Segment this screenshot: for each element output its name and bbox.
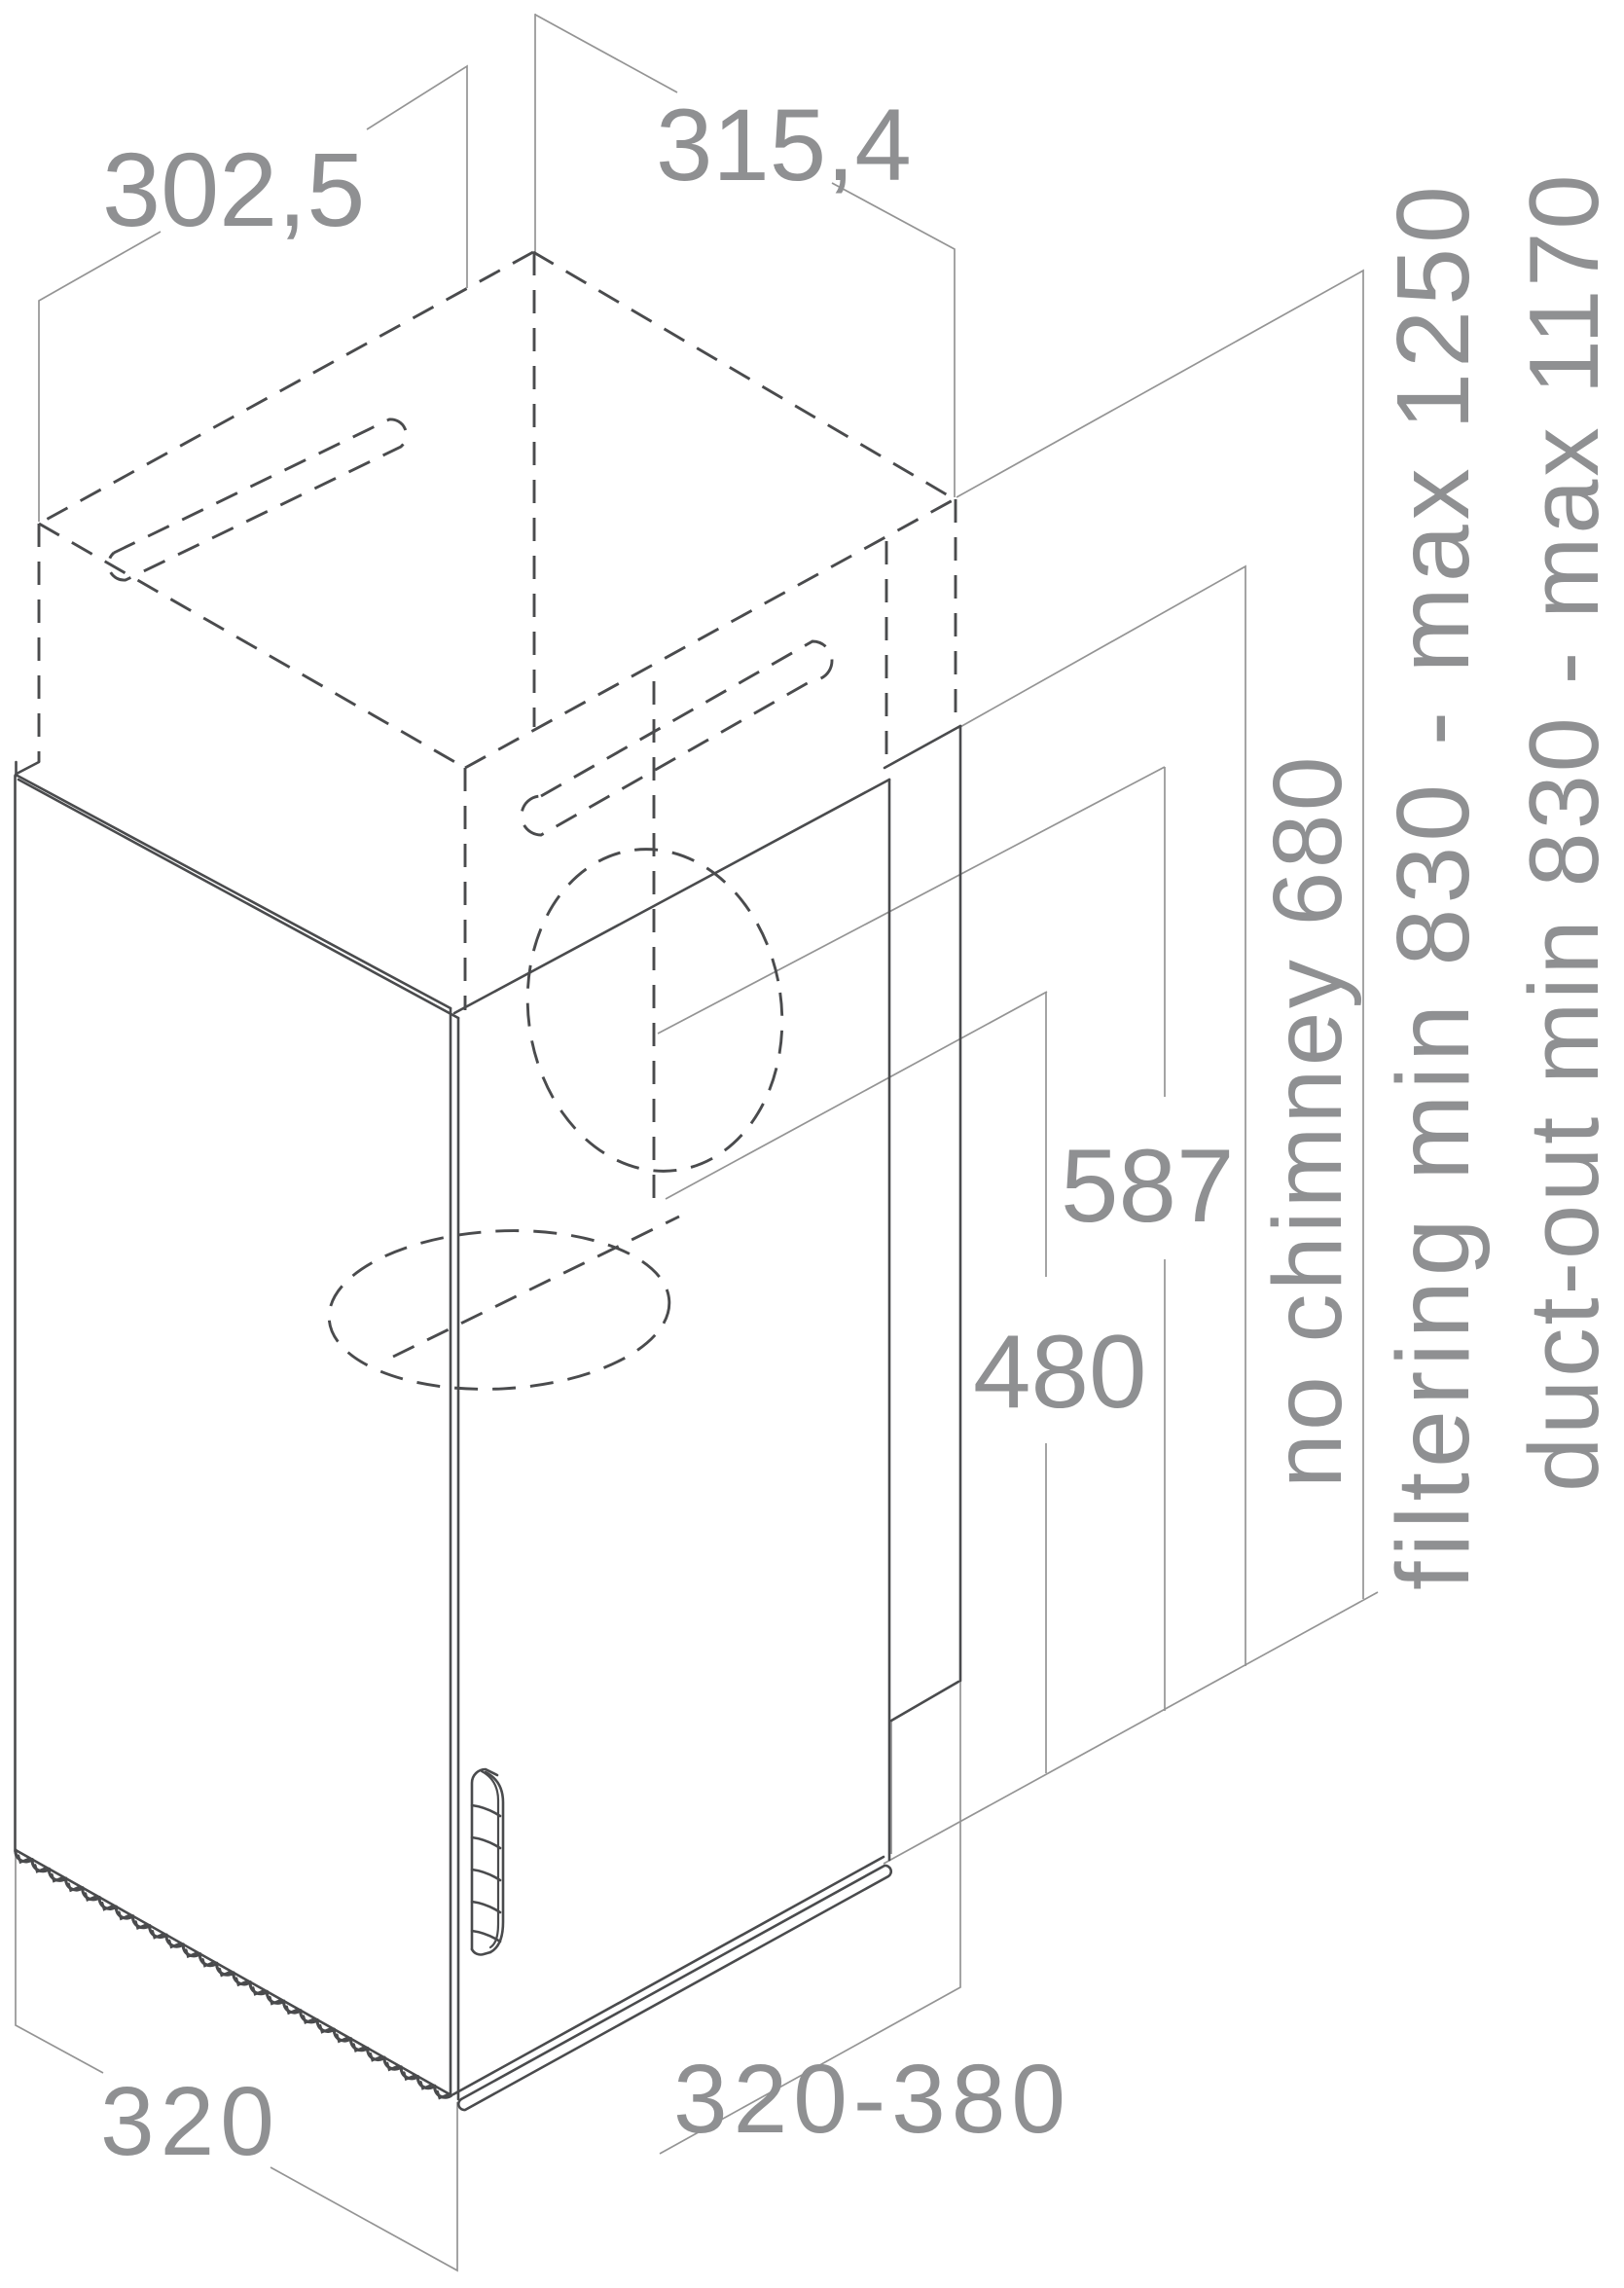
svg-text:320-380: 320-380 <box>673 2045 1071 2154</box>
svg-text:duct-out min 830 - max 1170: duct-out min 830 - max 1170 <box>1510 172 1619 1492</box>
svg-text:315,4: 315,4 <box>656 89 912 202</box>
svg-text:filtering min 830 - max 1250: filtering min 830 - max 1250 <box>1376 181 1491 1590</box>
svg-text:480: 480 <box>973 1313 1147 1430</box>
svg-text:302,5: 302,5 <box>102 130 365 248</box>
svg-text:320: 320 <box>100 2067 280 2176</box>
svg-text:587: 587 <box>1061 1127 1235 1244</box>
svg-text:no chimney 680: no chimney 680 <box>1253 753 1362 1488</box>
